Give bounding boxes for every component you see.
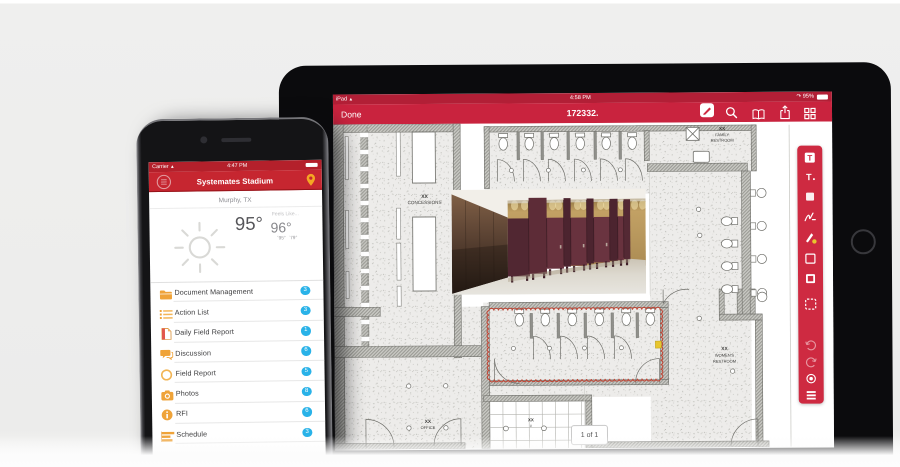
- svg-text:#: #: [530, 424, 532, 428]
- svg-text:RESTROOM: RESTROOM: [711, 138, 734, 143]
- svg-text:FAMILY: FAMILY: [715, 132, 729, 137]
- svg-text:WOMEN'S: WOMEN'S: [715, 353, 735, 358]
- svg-text:OFFICE: OFFICE: [421, 425, 436, 430]
- svg-text:XX: XX: [721, 346, 728, 352]
- svg-text:XX: XX: [719, 126, 726, 131]
- svg-text:XX: XX: [528, 417, 534, 422]
- svg-text:T: T: [807, 154, 812, 163]
- svg-text:RESTROOM: RESTROOM: [713, 359, 736, 364]
- svg-text:CONCESSIONS: CONCESSIONS: [408, 200, 442, 205]
- svg-text:T: T: [806, 172, 812, 182]
